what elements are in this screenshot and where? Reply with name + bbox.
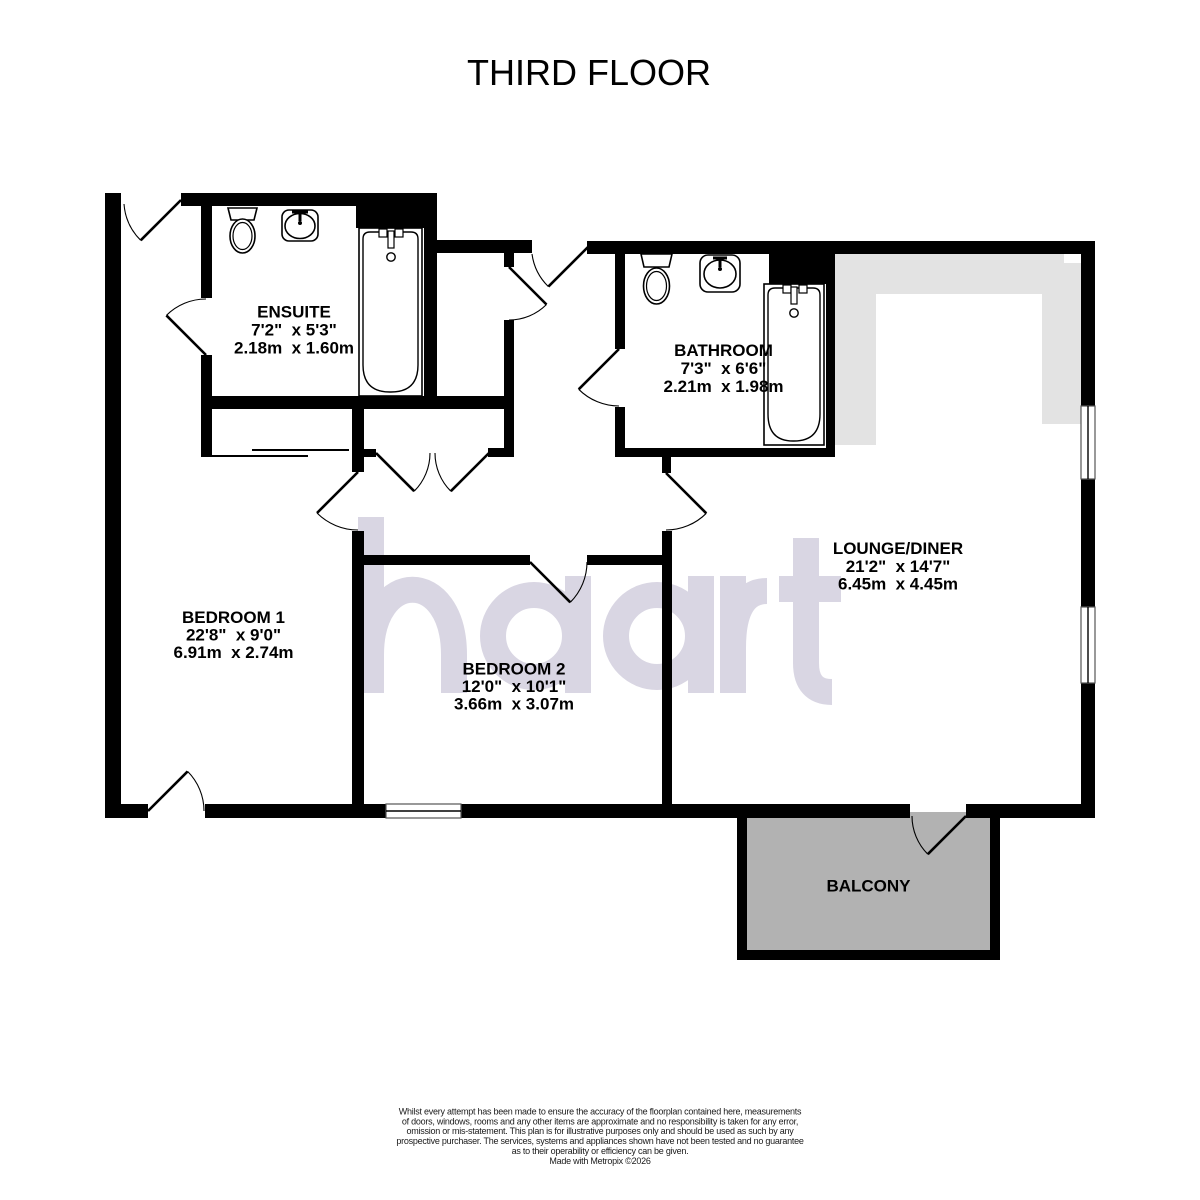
svg-text:omission or mis-statement. Thi: omission or mis-statement. This plan is … (406, 1126, 794, 1136)
svg-text:6.91m x 2.74m: 6.91m x 2.74m (173, 643, 293, 662)
svg-text:of doors, windows, rooms and a: of doors, windows, rooms and any other i… (402, 1116, 798, 1126)
svg-text:prospective purchaser. The ser: prospective purchaser. The services, sys… (396, 1136, 804, 1146)
svg-text:Made with Metropix ©2026: Made with Metropix ©2026 (549, 1156, 650, 1166)
svg-text:BEDROOM 2: BEDROOM 2 (463, 660, 566, 679)
svg-text:Whilst every attempt has been: Whilst every attempt has been made to en… (399, 1107, 802, 1117)
svg-text:12'0" x 10'1": 12'0" x 10'1" (462, 677, 567, 696)
svg-text:3.66m x 3.07m: 3.66m x 3.07m (454, 695, 574, 714)
svg-text:7'3" x 6'6": 7'3" x 6'6" (681, 359, 767, 378)
svg-text:BATHROOM: BATHROOM (674, 341, 773, 360)
svg-text:6.45m x 4.45m: 6.45m x 4.45m (838, 575, 958, 594)
svg-text:21'2" x 14'7": 21'2" x 14'7" (846, 557, 951, 576)
svg-text:22'8" x 9'0": 22'8" x 9'0" (186, 626, 281, 645)
svg-text:as to their operability or eff: as to their operability or efficiency ca… (512, 1146, 689, 1156)
svg-text:2.21m x 1.98m: 2.21m x 1.98m (663, 377, 783, 396)
svg-text:ENSUITE: ENSUITE (257, 303, 331, 322)
svg-text:BALCONY: BALCONY (826, 877, 911, 896)
svg-text:BEDROOM 1: BEDROOM 1 (182, 608, 285, 627)
svg-text:LOUNGE/DINER: LOUNGE/DINER (833, 539, 963, 558)
svg-text:2.18m x 1.60m: 2.18m x 1.60m (234, 339, 354, 358)
svg-text:7'2" x 5'3": 7'2" x 5'3" (251, 321, 337, 340)
svg-text:THIRD FLOOR: THIRD FLOOR (467, 52, 711, 93)
